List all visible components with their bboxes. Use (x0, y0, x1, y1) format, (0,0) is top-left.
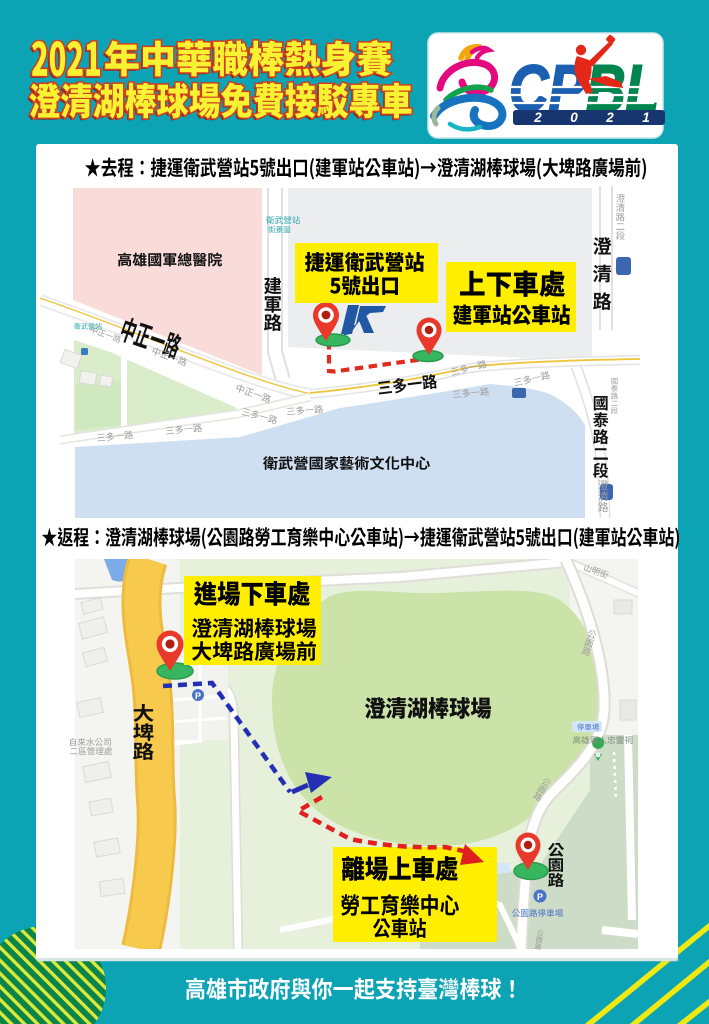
svg-text:0: 0 (570, 110, 578, 125)
svg-text:2: 2 (533, 110, 542, 125)
svg-text:1: 1 (642, 110, 650, 125)
svg-text:2: 2 (605, 110, 614, 125)
